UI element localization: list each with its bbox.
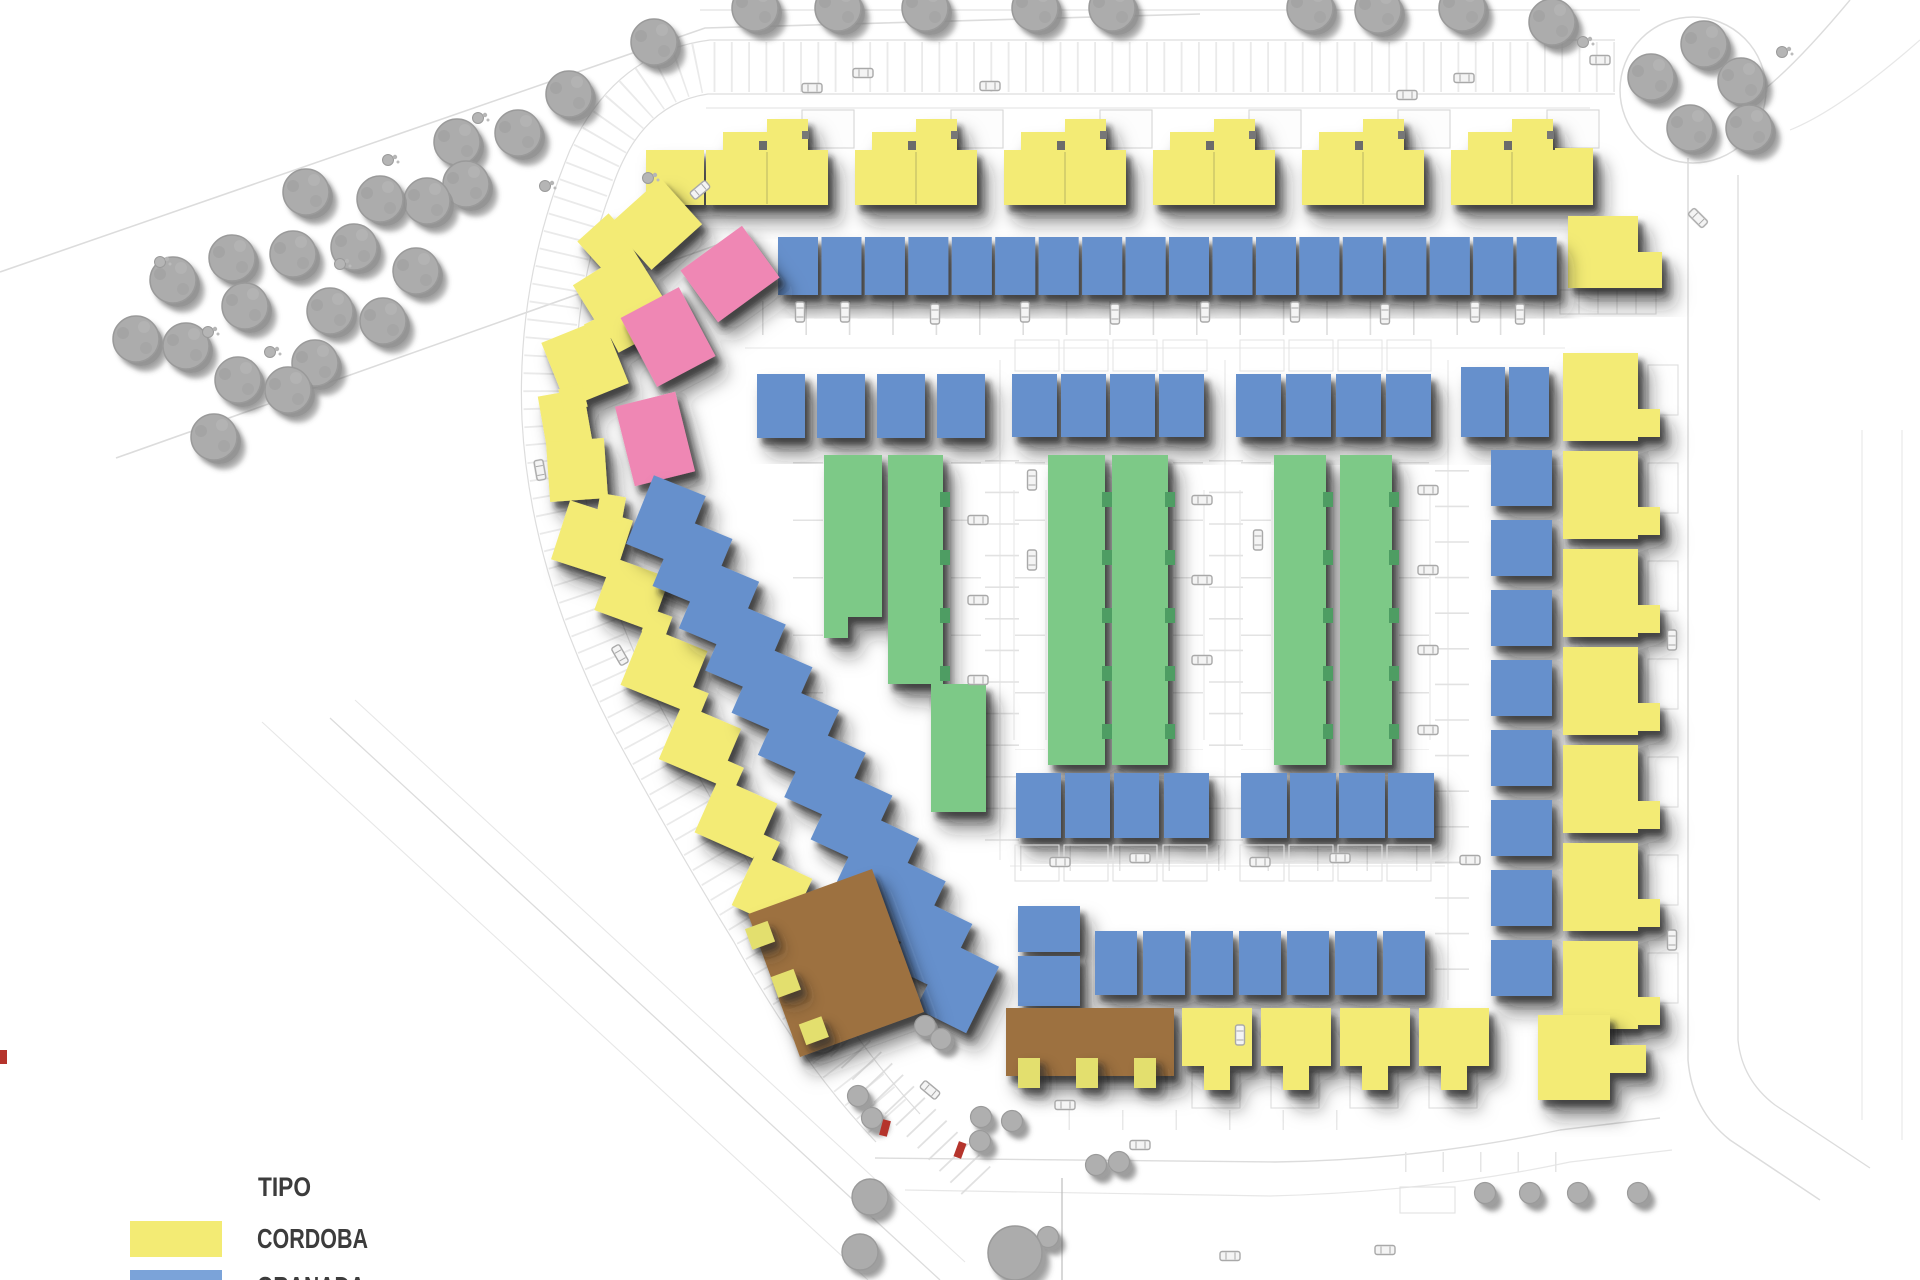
svg-text:TIPO: TIPO [258,1172,311,1202]
svg-text:GRANADA: GRANADA [257,1271,365,1280]
svg-text:CORDOBA: CORDOBA [257,1223,368,1254]
